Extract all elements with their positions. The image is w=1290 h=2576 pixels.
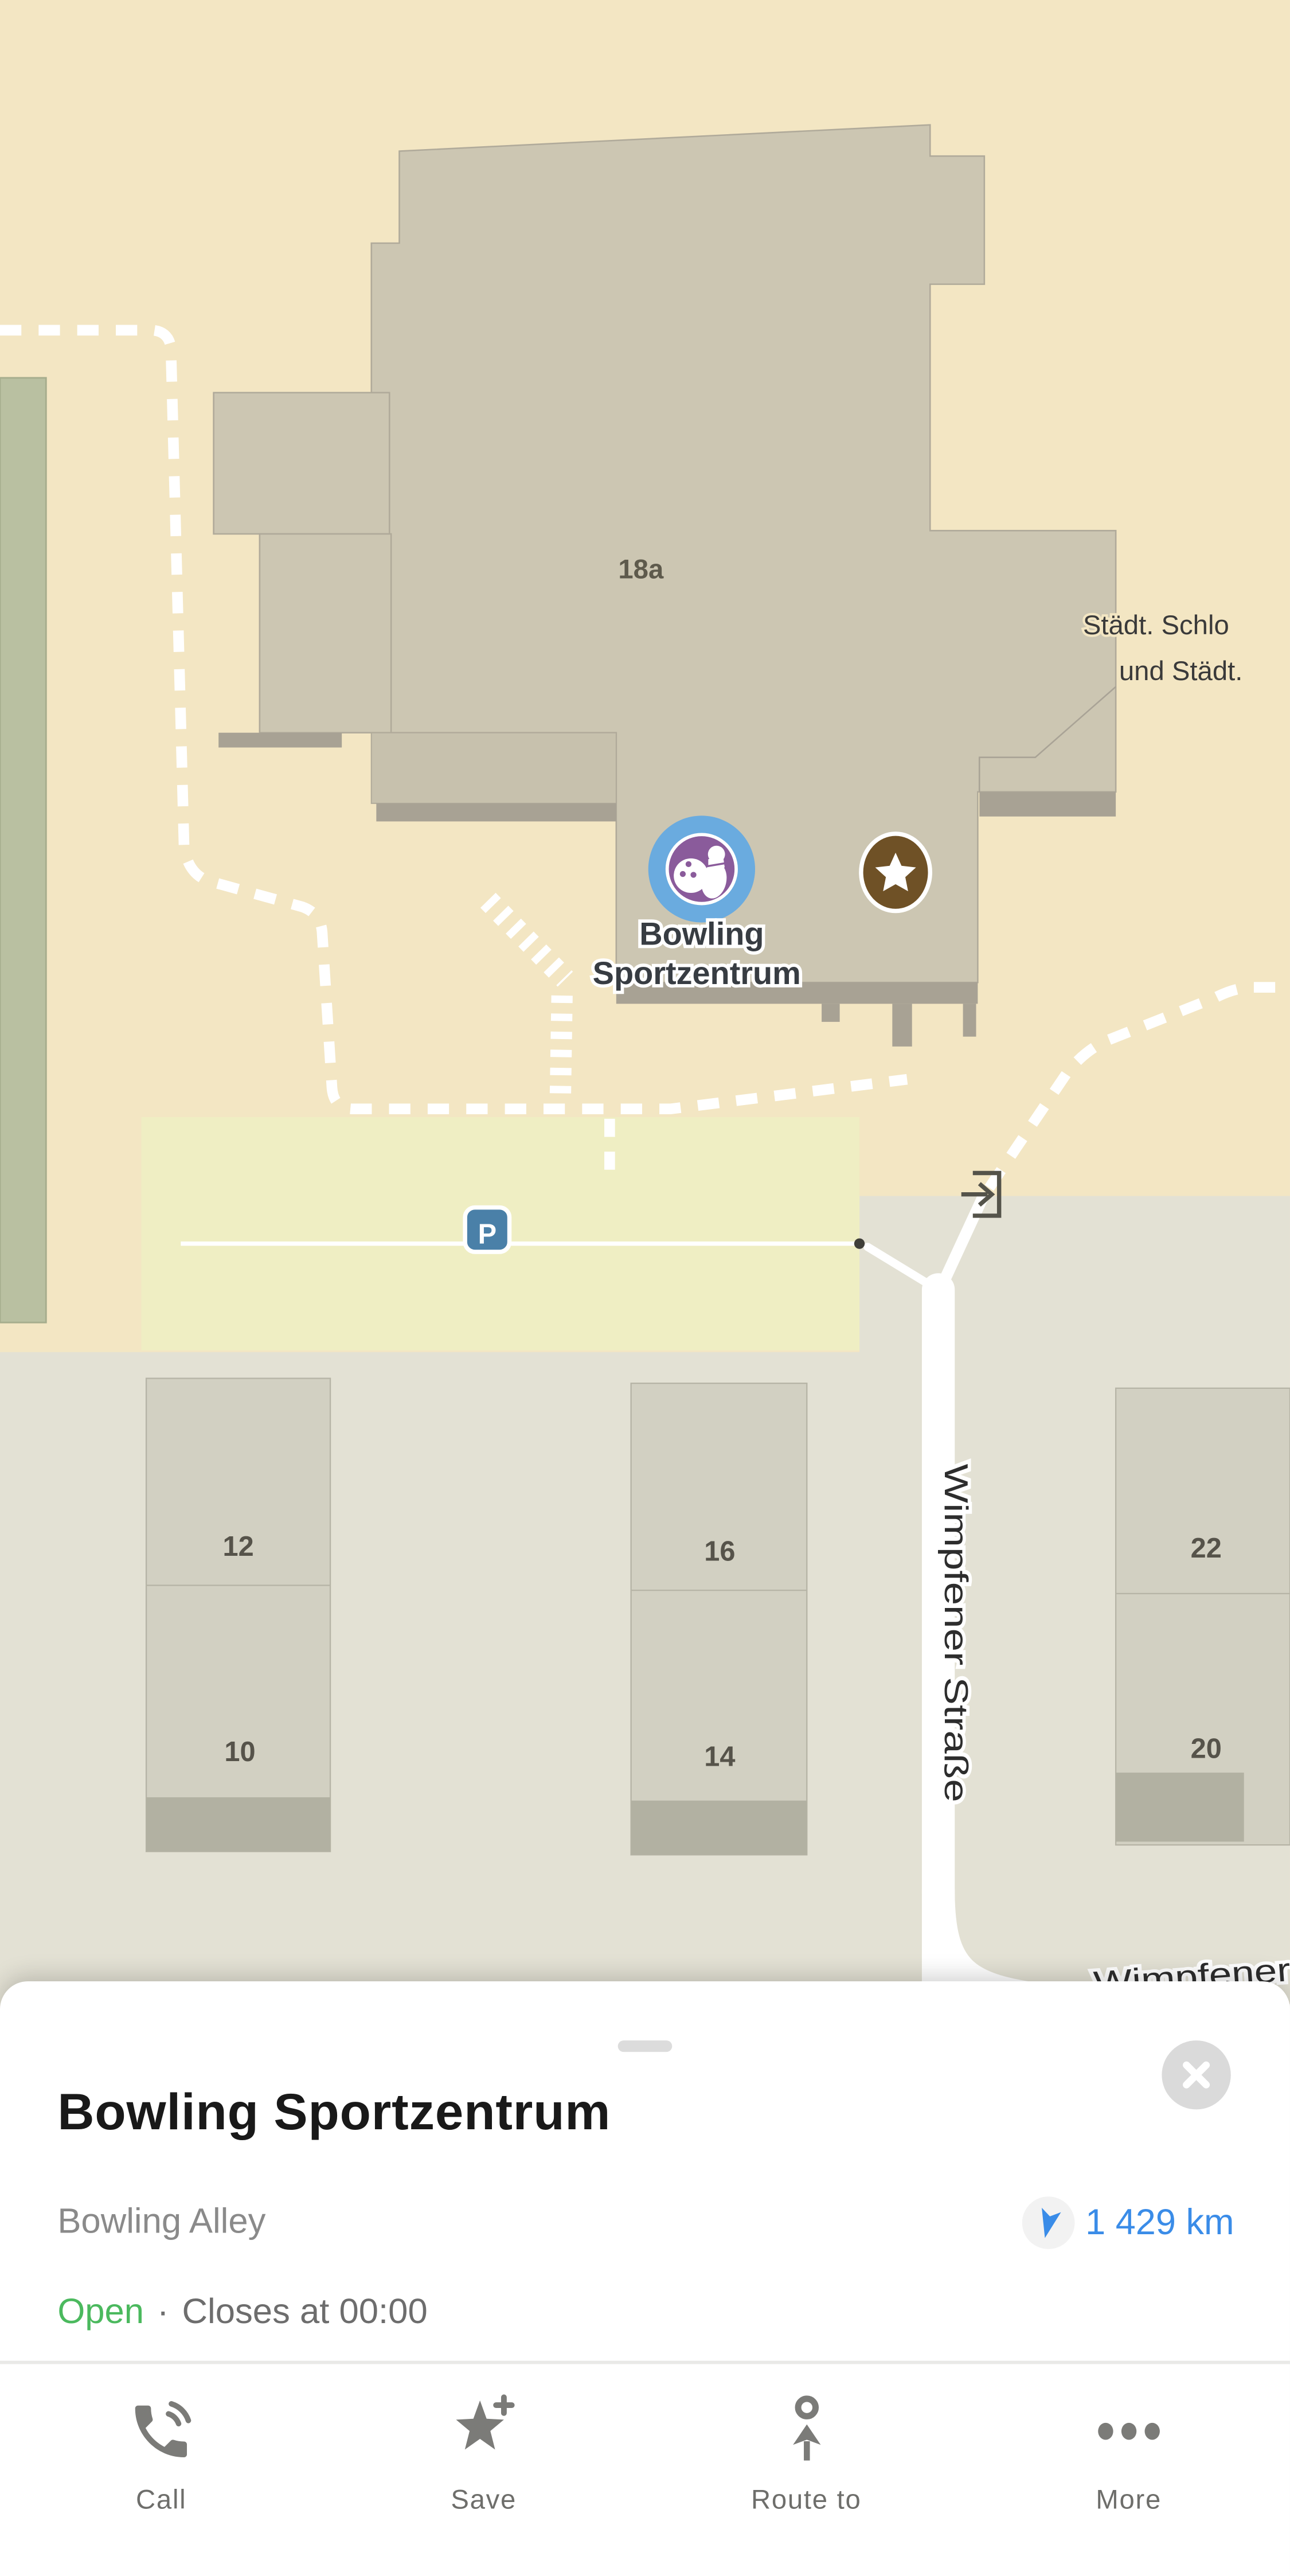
poi-name-line2: Sportzentrum: [593, 955, 801, 991]
house-number: 14: [704, 1742, 735, 1773]
place-right-label-2: und Städt.: [1119, 656, 1243, 686]
call-button[interactable]: Call: [0, 2364, 322, 2576]
action-label: Route to: [751, 2485, 862, 2516]
residential-buildings: [146, 1379, 1290, 1855]
poi-name-line1: Bowling: [639, 915, 764, 951]
action-label: Save: [451, 2485, 517, 2516]
status-row: Open·Closes at 00:00: [57, 2292, 427, 2333]
house-number: 10: [224, 1736, 255, 1767]
parking-lane-dot: [854, 1238, 865, 1248]
phone-icon: [127, 2394, 196, 2466]
action-label: Call: [136, 2485, 186, 2516]
open-status: Open: [57, 2292, 144, 2331]
star-plus-icon: [446, 2394, 522, 2466]
save-button[interactable]: Save: [322, 2364, 644, 2576]
closes-at: Closes at 00:00: [182, 2292, 428, 2331]
action-bar: Call Save R: [0, 2364, 1290, 2576]
place-right-label-1: Städt. Schlo: [1083, 610, 1229, 641]
close-icon: [1180, 2059, 1213, 2091]
house-number: 20: [1191, 1733, 1222, 1764]
more-button[interactable]: More: [967, 2364, 1289, 2576]
route-pin-arrow-icon: [770, 2394, 842, 2466]
house-number: 22: [1191, 1533, 1222, 1564]
more-dots-icon: [1091, 2394, 1167, 2466]
bowling-poi-icon[interactable]: [648, 815, 755, 922]
parking-icon[interactable]: P: [465, 1208, 509, 1252]
route-to-button[interactable]: Route to: [645, 2364, 967, 2576]
category-distance-row: Bowling Alley 1 429 km: [57, 2196, 1234, 2249]
status-separator: ·: [144, 2292, 182, 2331]
category-label: Bowling Alley: [57, 2202, 265, 2243]
action-label: More: [1096, 2485, 1162, 2516]
direction-arrow-icon: [1021, 2196, 1074, 2249]
house-number: 16: [704, 1536, 735, 1567]
page-title: Bowling Sportzentrum: [57, 2083, 611, 2142]
saved-star-icon[interactable]: [861, 834, 930, 911]
sheet-drag-handle[interactable]: [618, 2040, 673, 2052]
close-button[interactable]: [1162, 2040, 1230, 2109]
street-label-vertical: Wimpfener Straße: [937, 1464, 974, 1802]
building-number-label: 18a: [618, 554, 664, 584]
distance-value: 1 429 km: [1085, 2202, 1234, 2244]
distance-group: 1 429 km: [1021, 2196, 1234, 2249]
greenery-strip: [0, 378, 46, 1322]
place-card-sheet: Bowling Sportzentrum Bowling Alley 1 429…: [0, 1981, 1290, 2576]
parking-letter: P: [478, 1219, 497, 1250]
house-number: 12: [222, 1531, 253, 1562]
